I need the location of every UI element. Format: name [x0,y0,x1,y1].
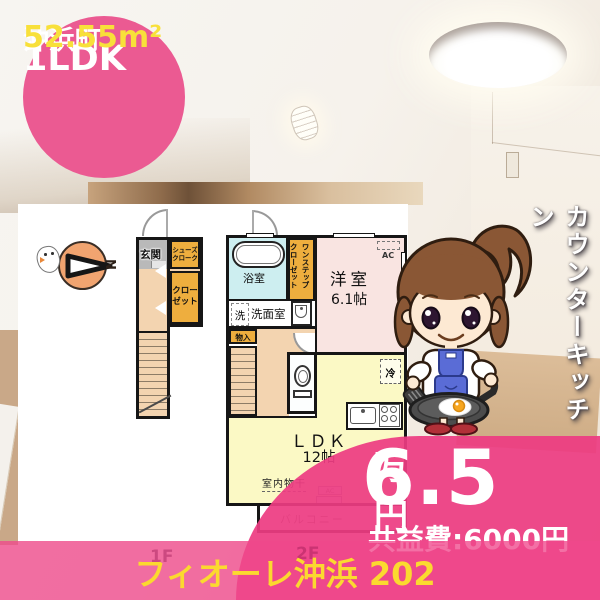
wall-corner-line [492,92,493,144]
closet: クロー ゼット [170,271,200,324]
entrance-door-leaf [166,209,168,237]
mascot-beak [40,257,45,263]
washer-space: 洗 [231,303,249,326]
kitchen-faucet-dot [361,409,365,413]
faucet-dot [300,307,303,310]
toilet-tank [293,390,312,398]
footer-band: 1F 2F フィオーレ沖浜 202 [0,541,600,600]
folding-door-icon [155,264,166,278]
area-label: 52.55m² [23,20,162,55]
window-mark [333,233,375,238]
toilet-seat-line [298,370,308,383]
western-room-size: 6.1帖 [331,289,367,309]
listing-image: 玄関 シューズ クローク クロー ゼット 浴室 ワンステップ クローゼット 洋室… [0,0,600,600]
bathroom-label: 浴室 [243,270,265,286]
window-mark [246,233,274,238]
one-step-closet-label-2: クローゼット [289,243,298,289]
shoes-cloak-label-1: シューズ [172,246,197,254]
entrance-label: 玄関 [140,247,161,262]
folding-door-icon [155,301,166,315]
compass-north-label: N [102,259,117,270]
closet-label-1: クロー [172,286,198,296]
feature-vertical-text: カウンターキッチン [548,204,594,440]
photo-floor-strip [88,182,423,205]
property-badge: 1LDK 沖浜町 52.55m² [23,16,185,178]
one-step-closet-label-1: ワンステップ [301,243,310,289]
shoes-cloak: シューズ クローク [170,240,200,269]
wall-switch [506,152,519,178]
bathtub-inner-line [236,245,281,264]
mascot-eye [44,253,47,256]
closet-label-2: ゼット [172,297,198,307]
ceiling-light-icon [429,22,567,88]
hallway [257,329,289,416]
western-room-label: 洋室 [330,266,371,290]
cooking-girl-character [385,220,535,438]
stairs-2f [229,346,257,416]
one-step-closet: ワンステップ クローゼット [288,238,315,301]
building-name-label: フィオーレ沖浜 202 [0,549,585,595]
storage-box: 物入 [229,329,257,344]
mascot-eye [51,252,54,255]
washroom-label: 洗面室 [251,306,286,322]
shoes-cloak-label-2: クローク [172,254,198,262]
